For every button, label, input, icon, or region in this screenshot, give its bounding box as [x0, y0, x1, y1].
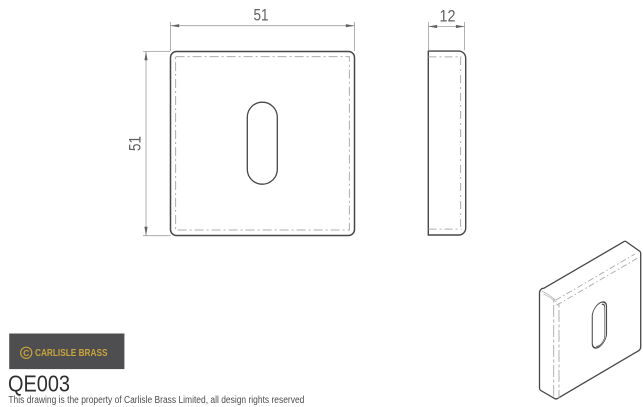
svg-text:12: 12 [440, 7, 456, 26]
svg-text:QE003: QE003 [8, 371, 70, 397]
svg-text:51: 51 [126, 136, 145, 151]
svg-text:CARLISLE BRASS: CARLISLE BRASS [35, 348, 108, 359]
svg-text:C: C [23, 348, 29, 358]
svg-text:This drawing is the property o: This drawing is the property of Carlisle… [8, 395, 304, 406]
svg-text:51: 51 [254, 6, 269, 25]
